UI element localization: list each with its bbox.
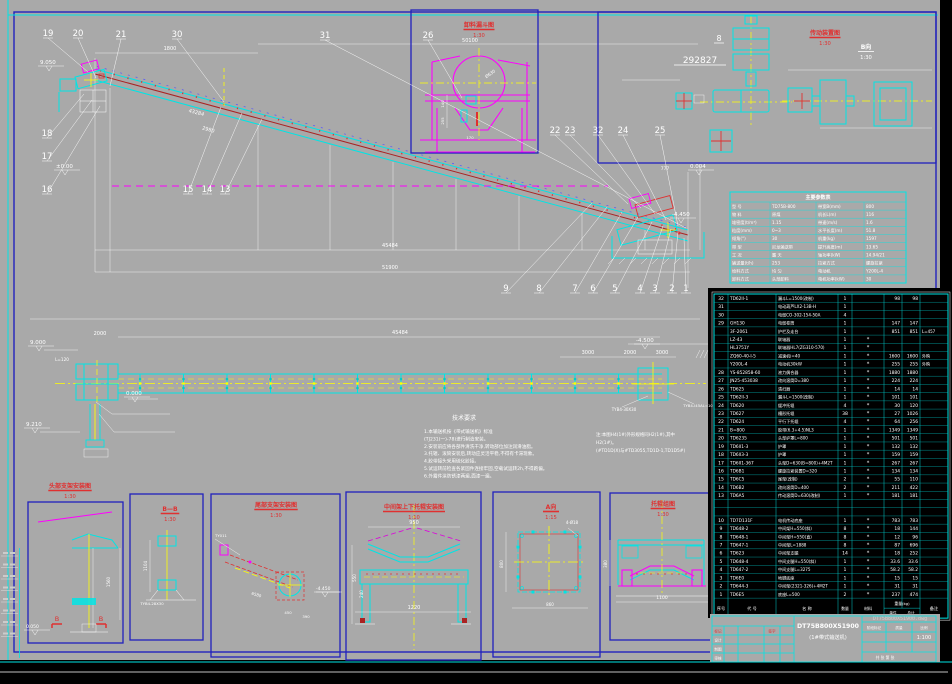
bom-qty: 1 — [844, 493, 847, 499]
param-value: 51.8 — [866, 228, 876, 233]
bom-seq: 30 — [718, 312, 724, 318]
tie-node — [443, 378, 446, 381]
bom-unit-weight: 98 — [894, 296, 900, 302]
bom-seq: 3 — [720, 575, 723, 581]
bom-qty: 1 — [844, 386, 847, 392]
bom-unit-weight: 27 — [894, 411, 900, 417]
item-balloon: 18 — [42, 129, 53, 139]
bom-name: 漏斗L=1500(改制) — [778, 295, 814, 301]
item-balloon: 2 — [669, 284, 674, 294]
bom-seq: 24 — [718, 403, 724, 409]
bom-name: 漏斗L=1500(改制) — [778, 394, 814, 400]
bom-header: 备注 — [930, 605, 939, 612]
tie-node — [574, 378, 577, 381]
bom-code: GH130 — [730, 321, 745, 327]
bom-material: * — [867, 543, 870, 549]
dimension-text: 1220 — [408, 605, 421, 611]
bom-remark: 外购 — [922, 361, 930, 367]
bom-total-weight: 134 — [910, 469, 919, 475]
bom-qty: 1 — [844, 337, 847, 343]
bom-seq: 17 — [718, 460, 724, 466]
bom-code: TD6E5 — [729, 592, 744, 598]
bom-qty: 1 — [844, 575, 847, 581]
item-balloon: 7 — [572, 284, 577, 294]
bom-code: TD6II1-3 — [729, 444, 748, 450]
bom-unit-weight: 851 — [892, 329, 901, 335]
bom-seq: 5 — [720, 559, 723, 565]
bom-material: * — [867, 419, 870, 425]
tie-node — [530, 387, 533, 390]
dimension-text: 51900 — [382, 265, 398, 271]
tie-center — [269, 382, 271, 384]
bom-unit-weight: 783 — [892, 518, 901, 524]
item-balloon: 21 — [116, 30, 127, 40]
bom-material: * — [867, 362, 870, 368]
bom-material: * — [867, 337, 870, 343]
bom-total-weight: 224 — [910, 378, 919, 384]
bom-total-weight: 267 — [910, 460, 919, 466]
legend-mark — [3, 610, 8, 612]
plan-tail-block — [632, 362, 674, 404]
bom-code: B=800 — [730, 427, 745, 433]
item-balloon: 19 — [43, 29, 54, 39]
bom-qty: 1 — [844, 444, 847, 450]
side-note-line: H2(1#)。 — [596, 440, 616, 446]
bom-qty: 1 — [844, 353, 847, 359]
item-balloon: 15 — [183, 185, 194, 195]
dimension-text: 390 — [302, 614, 310, 619]
item-balloon: 16 — [42, 185, 53, 195]
bom-qty: 1 — [844, 567, 847, 573]
bom-total-weight: 255 — [910, 362, 919, 368]
bom-total-weight: 98 — [912, 296, 918, 302]
bom-seq: 1 — [720, 592, 723, 598]
tie-center — [356, 382, 358, 384]
bom-material: * — [867, 592, 870, 598]
item-balloon: 13 — [220, 185, 231, 195]
revision-header: 签字 — [768, 629, 776, 634]
notes-line: 5.试运转前检查各紧固件连接牢固,空载试运转2h,不得跑偏。 — [424, 465, 547, 472]
legend-mark — [10, 552, 15, 554]
tie-center — [530, 382, 532, 384]
view-scale: 1:30 — [270, 513, 282, 519]
bom-qty: 8 — [844, 534, 847, 540]
tie-center — [574, 382, 576, 384]
tie-center — [617, 382, 619, 384]
bom-name: 改向滚筒D=400 — [778, 484, 809, 490]
notes-line: 2.安装前应将各部件清洗干净,转动部位加注润滑油脂。 — [424, 443, 536, 450]
cad-drawing-canvas: 主要参数表型 号TD75B-800带宽B(mm)800物 料原煤机长L(m)11… — [0, 0, 952, 684]
elevation-mark: ±0.00 — [56, 164, 73, 170]
bom-qty: 1 — [844, 329, 847, 335]
dimension-text: 1800 — [164, 46, 177, 52]
bom-name: 缓冲托辊 — [778, 402, 794, 408]
tie-node — [182, 387, 185, 390]
bom-material: * — [867, 469, 870, 475]
item-balloon: 22 — [550, 126, 561, 136]
bom-header: 材料 — [864, 605, 872, 611]
bom-unit-weight: 224 — [892, 378, 901, 384]
legend-mark — [10, 575, 15, 577]
bom-unit-weight: 147 — [892, 321, 901, 327]
bom-unit-weight: 33.6 — [890, 559, 900, 565]
param-table-title: 主要参数表 — [805, 194, 831, 201]
legend-mark — [3, 564, 8, 566]
part-label: L=120 — [55, 357, 69, 362]
bom-total-weight: 33.6 — [908, 559, 918, 565]
dimension-text: 170 — [466, 135, 474, 140]
bom-material: * — [867, 386, 870, 392]
bom-unit-weight: 211 — [892, 485, 901, 491]
view-scale: 1:10 — [408, 515, 420, 521]
view-title: 托辊组图 — [651, 500, 675, 508]
bom-total-weight: 1349 — [907, 427, 918, 433]
item-balloon: 3 — [652, 284, 657, 294]
revision-row-label: 设计 — [714, 638, 722, 643]
tie-node — [269, 378, 272, 381]
bom-unit-weight: 159 — [892, 452, 901, 458]
param-value: 均 匀 — [772, 268, 782, 275]
bom-unit-weight: 1600 — [889, 353, 900, 359]
legend-mark — [10, 610, 15, 612]
bom-unit-weight: 1880 — [889, 370, 900, 376]
bom-qty: 1 — [844, 584, 847, 590]
elevation-mark: 9.210 — [26, 422, 42, 428]
bom-qty: 4 — [844, 312, 847, 318]
part-label: B — [55, 615, 59, 623]
title-block: DT75B800X51900.dwg DT75B800X51900 (1#带式输… — [710, 614, 940, 662]
bom-material: * — [867, 345, 870, 351]
dimension-text: 450 — [284, 610, 292, 615]
part-label: B — [99, 615, 103, 623]
legend-mark — [10, 587, 15, 589]
bom-name: 电缆CO-302-154-50A — [778, 311, 821, 317]
tie-center — [139, 382, 141, 384]
param-label: 拉紧方式 — [818, 260, 836, 267]
bom-qty: 1 — [844, 452, 847, 458]
bom-unit-weight: 1349 — [889, 427, 900, 433]
tie-node — [574, 387, 577, 390]
bom-header: 代 号 — [747, 605, 757, 612]
bom-code: TD624 — [729, 419, 744, 425]
bom-code: Y200L-4 — [729, 362, 748, 368]
item-balloon: 31 — [320, 31, 331, 41]
bom-qty: 1 — [844, 321, 847, 327]
elevation-mark: 0.050 — [26, 624, 39, 630]
bom-code: TD648-1 — [729, 534, 749, 540]
view-title: 卸料漏斗图 — [464, 21, 494, 29]
filename-watermark: DT75B800X51900.dwg — [873, 616, 927, 622]
tie-node — [530, 378, 533, 381]
dimension-text: 777 — [661, 166, 670, 172]
elevation-mark: -4.450 — [316, 586, 331, 592]
bom-name: 中间支腿H=550(斜) — [778, 558, 816, 564]
bom-unit-weight: 55 — [894, 477, 900, 483]
bom-code: TD6II1-367 — [729, 460, 754, 466]
dimension-text: 1104 — [143, 560, 148, 571]
bom-code: TD6C5 — [729, 477, 745, 483]
bom-seq: 22 — [718, 419, 724, 425]
bom-name: 电动葫芦LX2-13B-H — [778, 303, 816, 309]
param-label: 卸料方式 — [732, 276, 750, 283]
bom-name: 尾架(改制) — [778, 476, 798, 482]
param-label: 型 号 — [732, 203, 742, 210]
tie-node — [487, 378, 490, 381]
bom-material: * — [867, 370, 870, 376]
bom-name: 清扫器 — [778, 385, 790, 391]
param-label: 粒度(mm) — [732, 227, 752, 234]
param-label: 输送量(t/h) — [732, 260, 754, 267]
bom-unit-weight: 14 — [894, 386, 900, 392]
bom-seq: 15 — [718, 477, 724, 483]
drawing-scale: 1:100 — [917, 635, 931, 641]
dimension-text: 1560 — [106, 576, 111, 587]
dimension-text: 140 — [440, 100, 445, 108]
tie-center — [226, 382, 228, 384]
bom-material: * — [867, 534, 870, 540]
bom-seq: 16 — [718, 469, 724, 475]
bom-name: 头部护罩L=800 — [778, 435, 808, 441]
tie-center — [313, 382, 315, 384]
bom-qty: 1 — [844, 370, 847, 376]
bom-header: 重量(kg) — [894, 601, 910, 606]
bom-qty: 2 — [844, 477, 847, 483]
notes-line: 4.胶带接头采用硫化胶接。 — [424, 458, 479, 465]
item-balloon: 8 — [536, 284, 541, 294]
bom-name: 电缆卷筒 — [778, 320, 794, 326]
bom-qty: 2 — [844, 485, 847, 491]
dimension-text: 2000 — [624, 350, 637, 356]
bom-code: TD647-2 — [729, 567, 749, 573]
bom-total-weight: 696 — [910, 543, 919, 549]
tie-node — [269, 387, 272, 390]
bom-qty: 1 — [844, 559, 847, 565]
bom-qty: 2 — [844, 592, 847, 598]
bom-name: 改向滚筒D=380 — [778, 377, 809, 383]
dimension-text: 4-Ø18 — [566, 520, 579, 525]
bom-total-weight: 101 — [910, 395, 919, 401]
bom-unit-weight: 501 — [892, 436, 901, 442]
bom-name: 联轴器 — [778, 336, 790, 342]
bom-name: 中间架H=550(直) — [778, 533, 812, 539]
bom-total-weight: 256 — [910, 419, 919, 425]
param-label: 轴功率(kW) — [818, 251, 841, 258]
param-value: 1.15 — [772, 220, 782, 225]
dimension-text: 3000 — [656, 350, 669, 356]
param-value: 13.65 — [866, 244, 878, 249]
bom-qty: 1 — [844, 378, 847, 384]
legend-mark — [3, 633, 8, 635]
tie-center — [182, 382, 184, 384]
revision-header: 标记 — [714, 629, 722, 634]
bom-total-weight: 159 — [910, 452, 919, 458]
bom-code: TD6II3-3 — [729, 452, 748, 458]
bom-unit-weight: 64 — [894, 419, 900, 425]
bom-code: TD620 — [729, 403, 744, 409]
elevation-mark: 0.004 — [690, 164, 706, 170]
bom-code: 3F-2061 — [730, 329, 748, 335]
bom-code: TD6E0 — [729, 575, 744, 581]
param-value: 原煤 — [772, 211, 781, 218]
bom-material: * — [867, 403, 870, 409]
dimension-text: 860 — [546, 602, 554, 607]
bom-material: * — [867, 584, 870, 590]
bom-seq: 18 — [718, 452, 724, 458]
tie-node — [139, 378, 142, 381]
bom-unit-weight: 181 — [892, 493, 901, 499]
legend-mark — [10, 633, 15, 635]
bom-seq: 20 — [718, 436, 724, 442]
bom-name: 胶带(6.3+4.5)NL3 — [778, 426, 814, 432]
bom-material: * — [867, 477, 870, 483]
param-label: 提升高度(m) — [818, 243, 842, 250]
bom-name: 中间架支腿 — [778, 550, 798, 556]
part-label: TYB4-28X30 — [139, 601, 164, 606]
param-value: 螺旋拉紧 — [866, 260, 883, 267]
legend-mark — [3, 587, 8, 589]
bom-qty: 1 — [844, 304, 847, 310]
bom-qty: 8 — [844, 526, 847, 532]
bom-name: 护罩 — [778, 451, 786, 457]
elevation-mark: 9.050 — [40, 60, 56, 66]
bom-code: TD6235 — [729, 436, 747, 442]
bom-seq: 10 — [718, 518, 724, 524]
bom-remark: 外购 — [922, 352, 930, 358]
item-balloon: 25 — [655, 126, 666, 136]
legend-mark — [3, 621, 8, 623]
bom-name: 电动机30kW — [778, 361, 802, 367]
item-balloon: 1 — [683, 284, 688, 294]
titleblock-label: 阶段标记 — [867, 625, 882, 630]
notes-title: 技术要求 — [452, 414, 476, 422]
revision-row-label: 审核 — [714, 656, 722, 661]
bom-material: * — [867, 395, 870, 401]
bom-total-weight: 181 — [910, 493, 919, 499]
bom-name: 传动滚筒D=630(改制) — [778, 492, 821, 498]
bom-name: 底座L=500 — [778, 591, 800, 597]
notes-line: 1.本输送机按《带式输送机》标准 — [424, 428, 493, 435]
bom-qty: 38 — [842, 411, 848, 417]
bom-seq: 29 — [718, 321, 724, 327]
param-label: 给料方式 — [732, 268, 750, 275]
tie-node — [226, 387, 229, 390]
part-label: TYB4-30X30 — [611, 407, 637, 412]
sheet-note: 共 张 第 张 — [876, 655, 895, 660]
item-balloon: 9 — [503, 284, 508, 294]
bom-total-weight: 1600 — [907, 353, 918, 359]
bom-total-weight: 31 — [912, 584, 918, 590]
dimension-text: 1100 — [656, 595, 668, 601]
bom-code: YS-852858-60 — [729, 370, 761, 376]
notes-line: (TJ231(一)-78)进行制造安装。 — [424, 435, 488, 442]
bom-unit-weight: 101 — [892, 395, 901, 401]
bom-unit-weight: 18 — [894, 551, 900, 557]
legend-mark — [3, 575, 8, 577]
view-title: 尾部支架安装图 — [254, 501, 297, 509]
bom-name: 护栏及走台 — [778, 328, 798, 334]
item-balloon: 4 — [637, 284, 642, 294]
tie-center — [443, 382, 445, 384]
param-value: 尼龙输送带 — [772, 243, 793, 250]
param-label: 水平长度(m) — [818, 227, 842, 234]
bom-unit-weight: 18 — [894, 526, 900, 532]
bom-name: 减速机i=40 — [778, 352, 800, 358]
bom-material: * — [867, 460, 870, 466]
dimension-text: 800 — [499, 560, 504, 568]
drawing-title: DT75B800X51900 — [797, 623, 860, 630]
legend-mark — [10, 598, 15, 600]
tie-node — [313, 387, 316, 390]
item-balloon: 14 — [202, 185, 213, 195]
param-value: 800 — [866, 204, 874, 209]
part-label: 8 — [716, 34, 721, 43]
tie-node — [313, 378, 316, 381]
param-value: 253 — [772, 261, 780, 266]
view-scale: 1:30 — [657, 512, 669, 518]
dimension-text: 380 — [603, 560, 608, 568]
bom-name: 中间架(2321-326)+4M2T — [778, 583, 828, 589]
tie-node — [400, 387, 403, 390]
bom-material: * — [867, 575, 870, 581]
param-value: 1.6 — [866, 220, 873, 225]
tie-node — [356, 387, 359, 390]
bom-code: TD648-4 — [729, 559, 749, 565]
bom-unit-weight: 15 — [894, 575, 900, 581]
bom-seq: 13 — [718, 493, 724, 499]
bom-seq: 14 — [718, 485, 724, 491]
param-label: 堆密度(t/m³) — [732, 219, 757, 226]
bom-seq: 6 — [720, 551, 723, 557]
dimension-text: 240 — [359, 590, 364, 598]
bom-qty: 1 — [844, 395, 847, 401]
dimension-text: 2000 — [94, 331, 107, 337]
view-title: B—B — [162, 506, 178, 513]
bom-code: TD648-2 — [729, 526, 749, 532]
bom-material: * — [867, 485, 870, 491]
param-label: 电机功率(kW) — [818, 276, 845, 283]
titleblock-label: 质量 — [895, 625, 903, 630]
view-scale: 1:30 — [860, 55, 872, 61]
bom-unit-weight: 31 — [894, 584, 900, 590]
item-balloon: 23 — [565, 126, 576, 136]
bom-total-weight: 58.2 — [908, 567, 918, 573]
bom-qty: 8 — [844, 543, 847, 549]
param-value: 头部卸料 — [772, 276, 790, 283]
view-title: 头部支架安装图 — [49, 482, 91, 490]
tie-node — [487, 387, 490, 390]
bom-unit-weight: 58.2 — [890, 567, 900, 573]
item-balloon: 30 — [172, 30, 183, 40]
bom-seq: 28 — [718, 370, 724, 376]
bom-qty: 1 — [844, 469, 847, 475]
bom-code: TD644-3 — [729, 584, 749, 590]
view-title: 传动装置图 — [809, 29, 840, 37]
bom-code: TD6B2 — [729, 485, 745, 491]
bom-qty: 1 — [844, 345, 847, 351]
view-scale: 1:30 — [473, 33, 485, 39]
dimension-text: 550 — [352, 574, 357, 582]
side-note-line: (#TD1D(X)与#TD3055,TD1D-1,TD1D5#) — [596, 447, 685, 454]
bom-code: TD627 — [729, 411, 744, 417]
tie-node — [226, 378, 229, 381]
dimension-text: 3000 — [582, 350, 595, 356]
bom-total-weight: 1880 — [907, 370, 918, 376]
bom-code: JN25-453038 — [729, 378, 758, 384]
dimension-text: 45484 — [382, 243, 398, 249]
bom-total-weight: 132 — [910, 444, 919, 450]
bom-seq: 21 — [718, 427, 724, 433]
bom-code: TD647-1 — [729, 543, 749, 549]
